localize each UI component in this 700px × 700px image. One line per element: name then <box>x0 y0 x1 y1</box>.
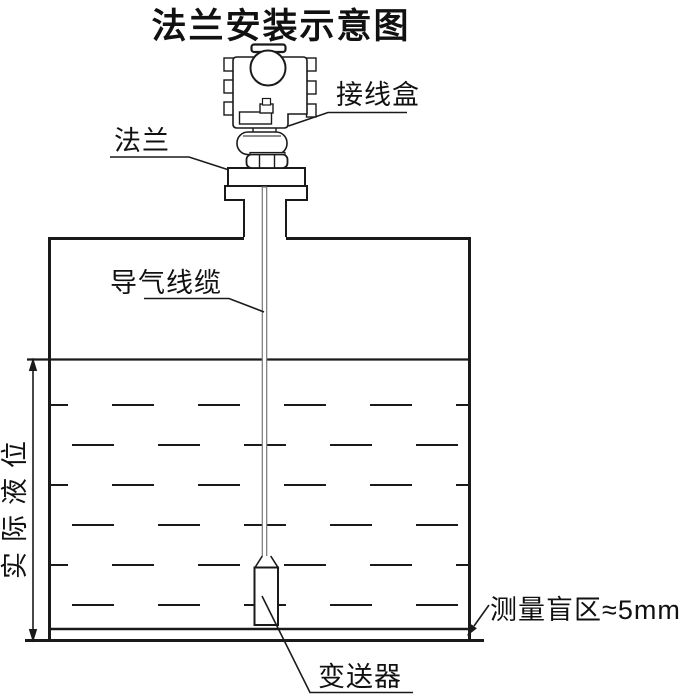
flange-plate <box>228 168 305 186</box>
level-dimension <box>29 358 37 643</box>
label-transmitter: 变送器 <box>318 662 402 692</box>
housing-fin <box>224 58 234 71</box>
connector-oval <box>237 132 287 155</box>
lid-circle <box>251 51 286 86</box>
housing-fin <box>307 104 317 117</box>
label-air-cable: 导气线缆 <box>110 268 222 298</box>
label-blind-zone: 测量盲区≈5mm <box>490 595 681 625</box>
leader-blind-zone <box>474 605 489 626</box>
cable-gland-tip <box>263 99 271 106</box>
air-cable <box>262 187 266 558</box>
housing-fin <box>307 81 317 94</box>
weight-taper <box>255 556 278 568</box>
diagram-canvas: 法兰安装示意图 接线盒 法兰 导气线缆 实际液位 变送器 测量盲区≈5mm <box>0 0 700 700</box>
cable-gland <box>240 112 272 124</box>
label-junction-box: 接线盒 <box>336 80 420 110</box>
weight-body <box>255 568 279 626</box>
diagram-page: 法兰安装示意图 接线盒 法兰 导气线缆 实际液位 变送器 测量盲区≈5mm <box>0 0 700 700</box>
leader-flange <box>110 157 228 170</box>
transmitter-head <box>224 45 316 169</box>
housing-fin <box>224 80 234 93</box>
label-actual-level: 实际液位 <box>0 431 30 579</box>
hex-nut <box>247 155 288 169</box>
label-flange: 法兰 <box>114 126 170 156</box>
housing-fin <box>224 102 234 115</box>
sensor-weight <box>255 556 279 625</box>
leader-air-cable <box>144 299 264 313</box>
housing-fin <box>307 58 317 71</box>
diagram-title: 法兰安装示意图 <box>151 7 410 46</box>
